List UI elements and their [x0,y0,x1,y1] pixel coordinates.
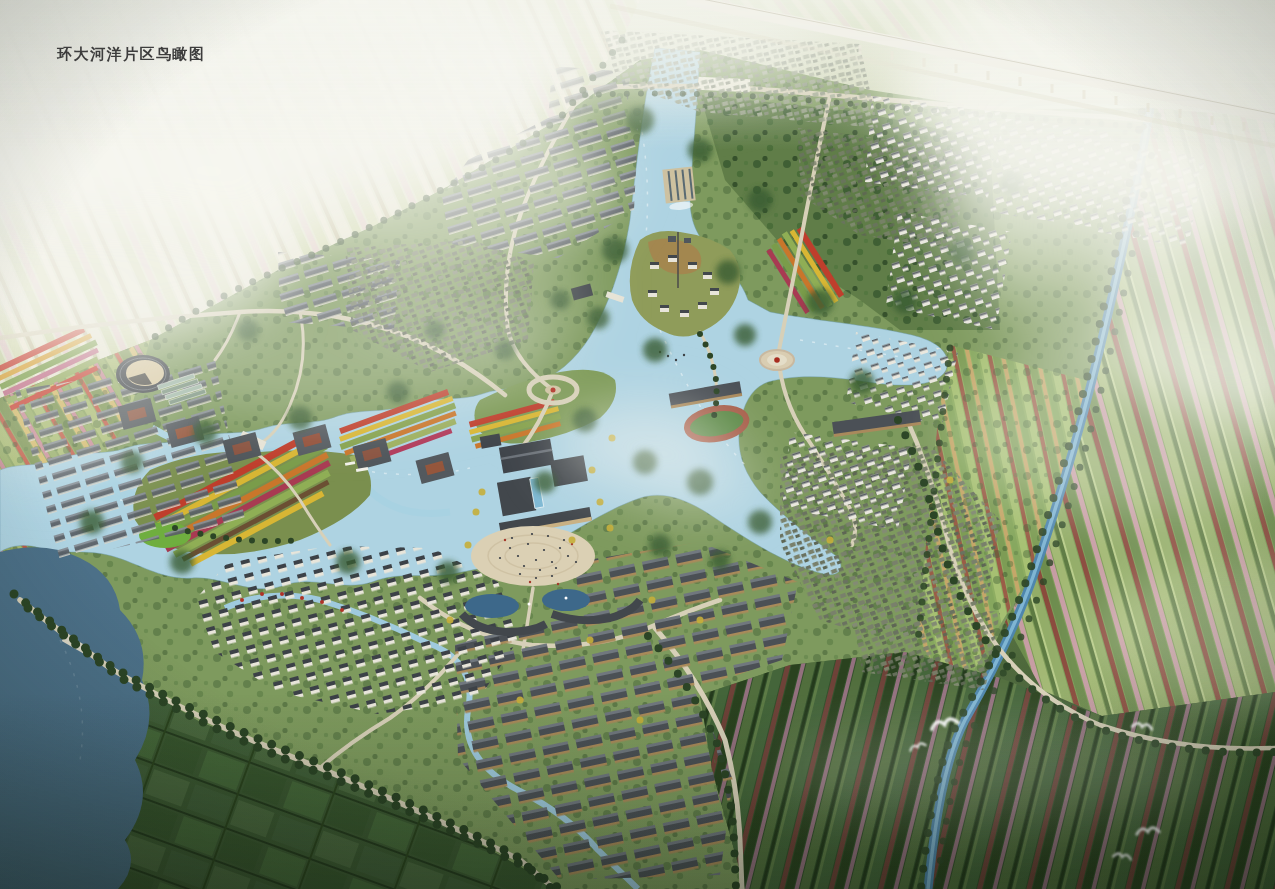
image-title: 环大河洋片区鸟瞰图 [57,45,206,64]
rendering-canvas [0,0,1275,889]
bottom-shade [0,0,1275,889]
aerial-masterplan-rendering: 环大河洋片区鸟瞰图 [0,0,1275,889]
